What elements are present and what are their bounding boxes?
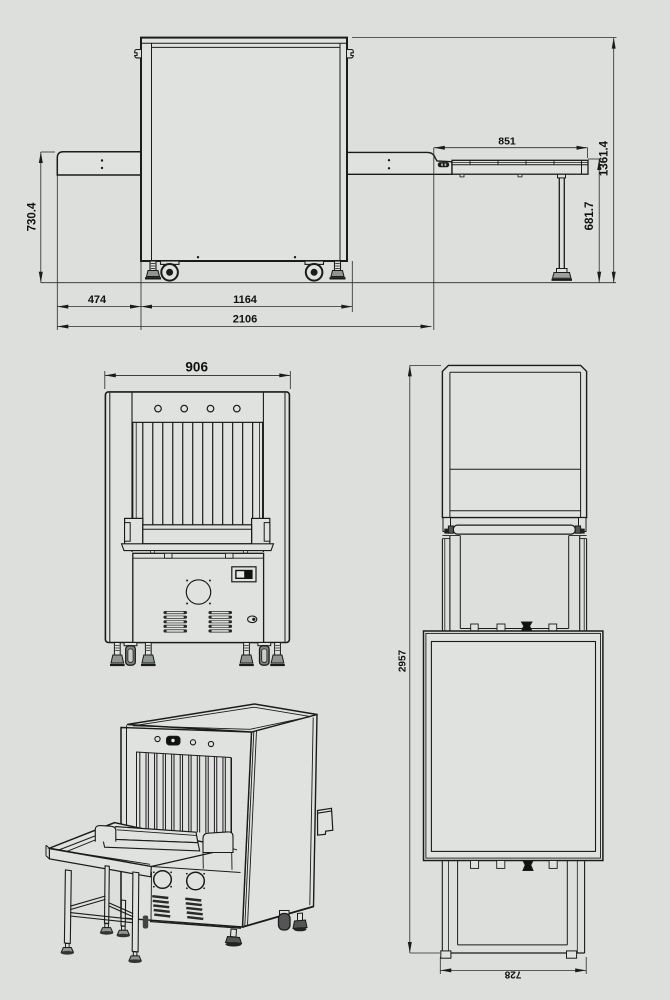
svg-text:2106: 2106 (233, 314, 257, 326)
svg-text:728: 728 (504, 969, 521, 980)
svg-text:1164: 1164 (233, 294, 258, 306)
svg-text:681.7: 681.7 (584, 202, 596, 231)
svg-text:851: 851 (498, 136, 516, 148)
svg-text:1361.4: 1361.4 (599, 140, 611, 176)
svg-text:2957: 2957 (398, 649, 409, 672)
svg-text:906: 906 (185, 360, 208, 375)
svg-text:474: 474 (88, 294, 107, 306)
svg-text:730.4: 730.4 (27, 202, 39, 231)
